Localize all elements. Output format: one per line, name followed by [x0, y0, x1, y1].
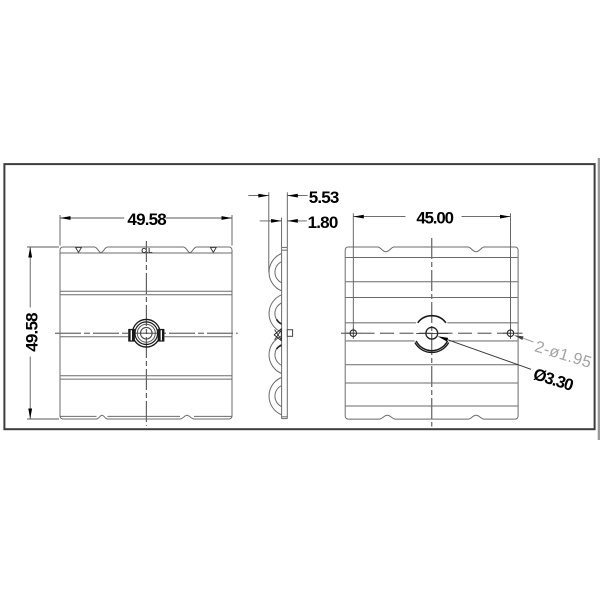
svg-text:49.58: 49.58 [127, 210, 166, 229]
svg-text:5.53: 5.53 [309, 188, 339, 207]
svg-text:C.L: C.L [141, 246, 153, 255]
svg-text:49.58: 49.58 [22, 313, 41, 352]
svg-text:1.80: 1.80 [308, 213, 338, 232]
svg-text:45.00: 45.00 [416, 208, 453, 227]
